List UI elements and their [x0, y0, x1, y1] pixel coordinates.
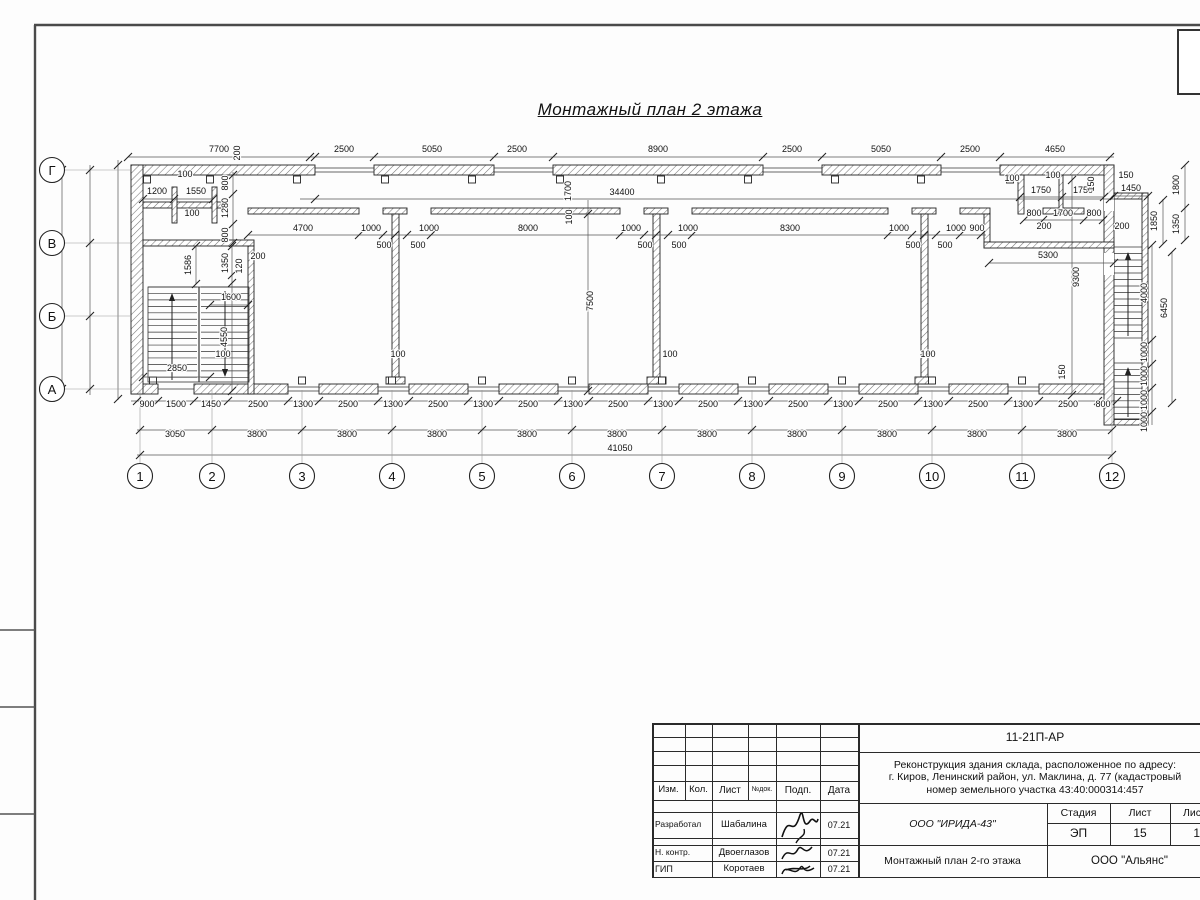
dimension-label: 3800 — [697, 429, 717, 439]
dimension-label: 1450 — [201, 399, 221, 409]
axis-label: А — [48, 382, 57, 397]
axis-label: 3 — [298, 469, 305, 484]
dimension-label: 3800 — [1057, 429, 1077, 439]
title-block-line — [652, 765, 858, 766]
dimension-label: 2500 — [698, 399, 718, 409]
dimension-label: 100 — [920, 349, 935, 359]
dimension-label: 200 — [232, 145, 242, 160]
title-block-line — [1170, 803, 1171, 845]
drawing-title: Монтажный план 2 этажа — [400, 100, 900, 120]
title-block-line — [858, 752, 1200, 753]
tb-date-2: 07.21 — [820, 845, 858, 861]
dimension-label: 2850 — [167, 363, 187, 373]
dimension-label: 1800 — [1171, 175, 1181, 195]
dimension-label: 3800 — [337, 429, 357, 439]
tb-name-1: Шабалина — [712, 812, 776, 838]
title-block-line — [652, 838, 858, 839]
dimension-label: 1280 — [220, 198, 230, 218]
tb-stage-label: Стадия — [1047, 803, 1110, 823]
dimension-label: 34400 — [609, 187, 634, 197]
dimension-label: 1000 — [1139, 412, 1149, 432]
title-block-line — [652, 723, 654, 878]
dimension-label: 900 — [139, 399, 154, 409]
tb-date-1: 07.21 — [820, 812, 858, 838]
title-block-line — [1047, 823, 1200, 824]
title-block-line — [652, 751, 858, 752]
dimension-label: 800 — [1086, 208, 1101, 218]
title-block-line — [820, 723, 821, 878]
dimension-label: 1200 — [147, 186, 167, 196]
dimension-label: 1300 — [923, 399, 943, 409]
dimension-label: 1350 — [220, 253, 230, 273]
dimension-label: 900 — [969, 223, 984, 233]
dimension-label: 1300 — [1013, 399, 1033, 409]
dimension-label: 41050 — [607, 443, 632, 453]
axis-label: 2 — [208, 469, 215, 484]
dimension-label: 1000 — [889, 223, 909, 233]
dimension-label: 7700 — [209, 144, 229, 154]
tb-col-podp: Подп. — [776, 781, 820, 800]
dimension-label: 100 — [215, 349, 230, 359]
axis-label: 6 — [568, 469, 575, 484]
dimension-label: 5050 — [871, 144, 891, 154]
dimension-label: 2500 — [960, 144, 980, 154]
dimension-label: 1700 — [563, 181, 573, 201]
axis-label: 5 — [478, 469, 485, 484]
dimension-label: 100 — [1045, 170, 1060, 180]
tb-col-data: Дата — [820, 781, 858, 800]
dimension-label: 9300 — [1071, 267, 1081, 287]
plan-walls — [131, 165, 1148, 425]
tb-col-ndok: №док. — [748, 781, 776, 800]
dimension-label: 500 — [410, 240, 425, 250]
dimension-label: 2500 — [1058, 399, 1078, 409]
title-block-line — [652, 861, 858, 862]
dimension-label: 2500 — [968, 399, 988, 409]
dimension-label: 8900 — [648, 144, 668, 154]
axis-label: 7 — [658, 469, 665, 484]
title-block-line — [685, 723, 686, 800]
dimension-label: 500 — [937, 240, 952, 250]
dimension-label: 2500 — [782, 144, 802, 154]
dimension-label: 800 — [220, 175, 230, 190]
title-block-line — [652, 812, 858, 813]
dimension-label: 1000 — [1139, 390, 1149, 410]
dimension-label: 4650 — [1045, 144, 1065, 154]
dimension-label: 2500 — [608, 399, 628, 409]
dimension-label: 1000 — [946, 223, 966, 233]
dimension-label: 1000 — [678, 223, 698, 233]
dimension-label: 2500 — [248, 399, 268, 409]
axis-label: Г — [48, 163, 55, 178]
dimension-label: 1300 — [383, 399, 403, 409]
dimension-label: 100 — [1004, 173, 1019, 183]
tb-drawing-name: Монтажный план 2-го этажа — [858, 845, 1047, 878]
dimension-label: 800 — [1095, 399, 1110, 409]
dimension-label: 150 — [1057, 364, 1067, 379]
dimension-label: 1850 — [1149, 211, 1159, 231]
tb-stage-value: ЭП — [1047, 823, 1110, 845]
title-block-line — [748, 723, 749, 800]
tb-doc-number: 11-21П-АР — [858, 723, 1200, 752]
dimension-label: 1300 — [653, 399, 673, 409]
tb-role-3: ГИП — [652, 861, 715, 878]
axis-label: 1 — [136, 469, 143, 484]
tb-project: Реконструкция здания склада, расположенн… — [858, 752, 1200, 803]
dimension-label: 1586 — [183, 255, 193, 275]
dimension-label: 150 — [1118, 170, 1133, 180]
drawing-sheet: 123456789101112ГВБА 77002002500505025008… — [0, 0, 1200, 900]
dimension-label: 1700 — [1053, 208, 1073, 218]
dimension-label: 8300 — [780, 223, 800, 233]
dimension-label: 3800 — [967, 429, 987, 439]
title-block-line — [858, 803, 1200, 804]
dimension-label: 4700 — [293, 223, 313, 233]
tb-firm: ООО "Альянс" — [1047, 845, 1200, 878]
dimension-label: 2500 — [788, 399, 808, 409]
tb-role-2: Н. контр. — [652, 845, 715, 861]
dimension-label: 1300 — [293, 399, 313, 409]
dimension-label: 100 — [184, 208, 199, 218]
axis-label: 11 — [1015, 469, 1029, 484]
dimension-label: 500 — [905, 240, 920, 250]
dimension-label: 2500 — [518, 399, 538, 409]
title-block: Изм. Кол. Лист №док. Подп. Дата Разработ… — [652, 723, 1200, 878]
dimension-label: 1450 — [1121, 183, 1141, 193]
tb-project-line1: Реконструкция здания склада, расположенн… — [894, 759, 1176, 771]
tb-sheet-value: 15 — [1110, 823, 1170, 845]
dimension-label: 1750 — [1031, 185, 1051, 195]
dimension-label: 1000 — [1139, 342, 1149, 362]
dimension-label: 100 — [662, 349, 677, 359]
title-block-line — [1047, 803, 1048, 878]
dimension-label: 8000 — [518, 223, 538, 233]
dimension-label: 500 — [671, 240, 686, 250]
dimension-label: 120 — [234, 258, 244, 273]
tb-date-3: 07.21 — [820, 861, 858, 878]
axis-label: 4 — [388, 469, 395, 484]
dimension-label: 1550 — [186, 186, 206, 196]
dimension-label: 1000 — [621, 223, 641, 233]
title-block-line — [652, 781, 858, 782]
title-block-line — [1110, 803, 1111, 845]
tb-org: ООО "ИРИДА-43" — [858, 803, 1047, 845]
tb-name-2: Двоеглазов — [712, 845, 776, 861]
dimension-label: 200 — [1036, 221, 1051, 231]
dimension-label: 1300 — [473, 399, 493, 409]
title-block-line — [776, 723, 777, 878]
dimension-label: 1000 — [1139, 366, 1149, 386]
tb-role-1: Разработал — [652, 812, 715, 838]
dimension-label: 2500 — [507, 144, 527, 154]
dimension-label: 4550 — [219, 327, 229, 347]
dimension-label: 6450 — [1159, 298, 1169, 318]
tb-sheets-label: Листов — [1170, 803, 1200, 823]
tb-col-kol: Кол. — [685, 781, 712, 800]
dimension-label: 5050 — [422, 144, 442, 154]
title-block-line — [652, 877, 1200, 879]
title-block-line — [652, 845, 1200, 846]
dimension-label: 2500 — [334, 144, 354, 154]
dimension-label: 200 — [1114, 221, 1129, 231]
tb-col-list: Лист — [712, 781, 748, 800]
dimension-label: 2500 — [878, 399, 898, 409]
dimension-label: 1300 — [833, 399, 853, 409]
axis-label: В — [48, 236, 57, 251]
dimension-label: 1300 — [743, 399, 763, 409]
tb-sheets-value: 18 — [1170, 823, 1200, 845]
dimension-label: 200 — [250, 251, 265, 261]
dimension-label: 100 — [390, 349, 405, 359]
dimension-label: 100 — [177, 169, 192, 179]
dimension-label: 3800 — [427, 429, 447, 439]
dimension-label: 800 — [220, 227, 230, 242]
tb-name-3: Коротаев — [712, 861, 776, 878]
dimension-label: 3800 — [517, 429, 537, 439]
dimension-label: 1600 — [221, 292, 241, 302]
title-block-line — [652, 723, 1200, 725]
dimension-label: 2500 — [338, 399, 358, 409]
dimension-label: 2500 — [428, 399, 448, 409]
dimension-label: 7500 — [585, 291, 595, 311]
title-block-line — [712, 723, 713, 878]
tb-col-izm: Изм. — [652, 781, 685, 800]
title-block-line — [858, 723, 860, 878]
axis-label: 8 — [748, 469, 755, 484]
axis-label: Б — [48, 309, 57, 324]
dimension-label: 3050 — [165, 429, 185, 439]
dimension-label: 4000 — [1139, 283, 1149, 303]
dimension-label: 500 — [637, 240, 652, 250]
title-block-line — [652, 737, 858, 738]
dimension-label: 500 — [376, 240, 391, 250]
dimension-label: 800 — [1026, 208, 1041, 218]
tb-project-line2: г. Киров, Ленинский район, ул. Маклина, … — [889, 771, 1181, 783]
dimension-label: 3800 — [877, 429, 897, 439]
axis-label: 12 — [1105, 469, 1119, 484]
dimension-label: 1000 — [361, 223, 381, 233]
tb-project-line3: номер земельного участка 43:40:000314:45… — [926, 784, 1143, 796]
dimension-label: 5300 — [1038, 250, 1058, 260]
tb-sheet-label: Лист — [1110, 803, 1170, 823]
dimension-label: 1300 — [563, 399, 583, 409]
dimension-label: 100 — [564, 209, 574, 224]
title-block-line — [652, 800, 858, 801]
dimension-label: 3800 — [247, 429, 267, 439]
axis-label: 9 — [838, 469, 845, 484]
dimension-label: 3800 — [787, 429, 807, 439]
dimension-label: 1500 — [166, 399, 186, 409]
dimension-label: 1350 — [1171, 214, 1181, 234]
dimension-label: 1000 — [419, 223, 439, 233]
dimension-label: 150 — [1086, 176, 1096, 191]
dimension-label: 3800 — [607, 429, 627, 439]
axis-label: 10 — [925, 469, 939, 484]
